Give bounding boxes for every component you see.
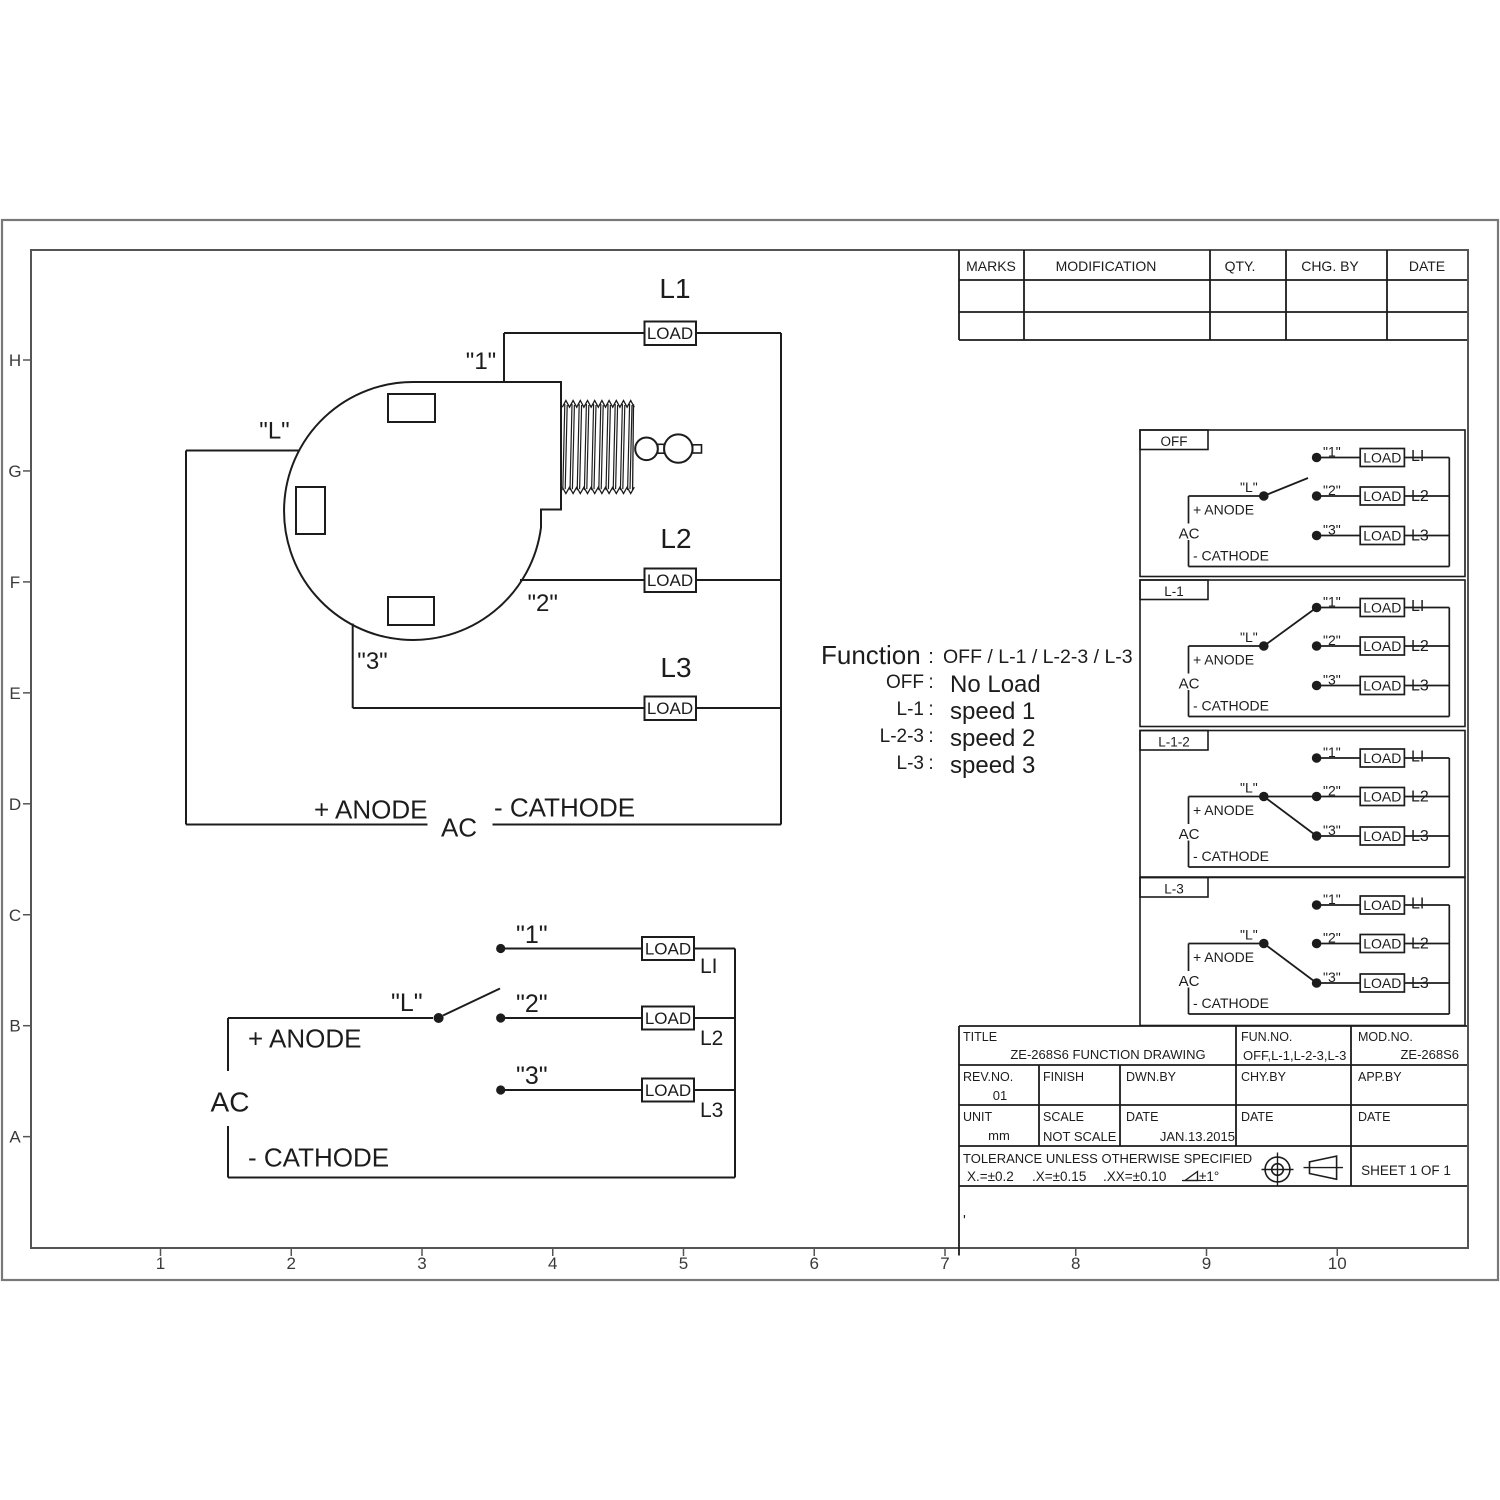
svg-text:Function: Function — [821, 640, 921, 670]
svg-text:DWN.BY: DWN.BY — [1126, 1070, 1177, 1084]
svg-text:JAN.13.2015: JAN.13.2015 — [1160, 1129, 1235, 1144]
svg-text:G: G — [8, 462, 21, 481]
svg-text:"3": "3" — [357, 648, 387, 675]
svg-text:L-1: L-1 — [1164, 584, 1184, 599]
svg-text:LOAD: LOAD — [1363, 678, 1401, 694]
svg-text:L-1: L-1 — [897, 699, 924, 720]
svg-text:L2: L2 — [1411, 638, 1429, 655]
svg-text:"1": "1" — [516, 921, 548, 949]
svg-text:"L": "L" — [1240, 780, 1258, 796]
svg-text:L2: L2 — [1411, 936, 1429, 953]
svg-text:01: 01 — [993, 1088, 1007, 1103]
svg-text:LOAD: LOAD — [647, 324, 693, 343]
svg-text:AC: AC — [1179, 526, 1200, 543]
svg-text:OFF / L-1 / L-2-3 / L-3: OFF / L-1 / L-2-3 / L-3 — [943, 646, 1133, 668]
svg-text:L3: L3 — [1411, 975, 1429, 992]
svg-text:LOAD: LOAD — [1363, 897, 1401, 913]
svg-text:NOT SCALE: NOT SCALE — [1043, 1129, 1117, 1144]
svg-text:LOAD: LOAD — [1363, 638, 1401, 654]
svg-text:LOAD: LOAD — [645, 1081, 691, 1100]
svg-text:OFF: OFF — [1161, 434, 1188, 449]
svg-text:L2: L2 — [1411, 789, 1429, 806]
svg-text:L2: L2 — [1411, 488, 1429, 505]
svg-text::: : — [928, 753, 933, 774]
svg-text:"L": "L" — [259, 418, 289, 445]
svg-text:+ ANODE: + ANODE — [1193, 802, 1254, 818]
svg-text:DATE: DATE — [1126, 1110, 1158, 1124]
svg-text:- CATHODE: - CATHODE — [1193, 698, 1269, 714]
svg-text:MARKS: MARKS — [966, 258, 1016, 274]
svg-text:OFF,L-1,L-2-3,L-3: OFF,L-1,L-2-3,L-3 — [1243, 1048, 1346, 1063]
svg-text:L-3: L-3 — [1164, 882, 1184, 897]
svg-text:1: 1 — [156, 1254, 165, 1273]
svg-text:"1": "1" — [1323, 444, 1341, 460]
svg-text:LI: LI — [700, 955, 718, 978]
svg-text:FINISH: FINISH — [1043, 1070, 1084, 1084]
svg-text:- CATHODE: - CATHODE — [1193, 848, 1269, 864]
svg-text:B: B — [9, 1017, 20, 1036]
svg-text:QTY.: QTY. — [1225, 258, 1256, 274]
svg-text:CHG. BY: CHG. BY — [1301, 258, 1359, 274]
svg-text:DATE: DATE — [1241, 1110, 1273, 1124]
svg-text:OFF: OFF — [886, 672, 924, 693]
svg-text::: : — [928, 699, 933, 720]
svg-text:AC: AC — [1179, 676, 1200, 693]
svg-text:"1": "1" — [1323, 744, 1341, 760]
svg-text::: : — [928, 726, 933, 747]
svg-text:L3: L3 — [1411, 828, 1429, 845]
svg-text:L3: L3 — [660, 652, 691, 683]
svg-text:2: 2 — [287, 1254, 296, 1273]
svg-text:- CATHODE: - CATHODE — [494, 793, 635, 823]
svg-text:L2: L2 — [700, 1027, 723, 1050]
svg-text:+ ANODE: + ANODE — [1193, 652, 1254, 668]
svg-text:LI: LI — [1411, 598, 1424, 615]
svg-text:LOAD: LOAD — [1363, 936, 1401, 952]
svg-text:APP.BY: APP.BY — [1358, 1070, 1402, 1084]
svg-text:LOAD: LOAD — [1363, 600, 1401, 616]
svg-text:D: D — [9, 795, 21, 814]
svg-text:LOAD: LOAD — [647, 699, 693, 718]
svg-text:TOLERANCE UNLESS OTHERWISE SPE: TOLERANCE UNLESS OTHERWISE SPECIFIED — [963, 1151, 1252, 1166]
svg-text:LOAD: LOAD — [1363, 750, 1401, 766]
svg-text:H: H — [9, 351, 21, 370]
svg-text:- CATHODE: - CATHODE — [1193, 548, 1269, 564]
svg-text:AC: AC — [1179, 826, 1200, 843]
svg-text:6: 6 — [810, 1254, 819, 1273]
svg-text:"2": "2" — [1323, 930, 1341, 946]
svg-text:LOAD: LOAD — [1363, 450, 1401, 466]
svg-text:9: 9 — [1202, 1254, 1211, 1273]
svg-text:+ ANODE: + ANODE — [248, 1024, 361, 1054]
svg-text:7: 7 — [940, 1254, 949, 1273]
svg-text:"2": "2" — [1323, 482, 1341, 498]
svg-text:L2: L2 — [660, 523, 691, 554]
svg-text:DATE: DATE — [1358, 1110, 1390, 1124]
svg-text:10: 10 — [1328, 1254, 1347, 1273]
svg-text:A: A — [9, 1128, 21, 1147]
svg-text:.X=±0.15: .X=±0.15 — [1032, 1169, 1086, 1184]
svg-text:"L": "L" — [1240, 629, 1258, 645]
svg-text:MOD.NO.: MOD.NO. — [1358, 1030, 1413, 1044]
svg-text:3: 3 — [417, 1254, 426, 1273]
svg-text:L1: L1 — [659, 273, 690, 304]
svg-text:"1": "1" — [1323, 594, 1341, 610]
svg-text:AC: AC — [1179, 973, 1200, 990]
svg-text:L-1-2: L-1-2 — [1158, 735, 1190, 750]
svg-text::: : — [928, 672, 933, 693]
svg-text:FUN.NO.: FUN.NO. — [1241, 1030, 1292, 1044]
svg-text:DATE: DATE — [1409, 258, 1445, 274]
svg-text:LOAD: LOAD — [645, 940, 691, 959]
svg-text:mm: mm — [988, 1128, 1010, 1143]
svg-text:L-3: L-3 — [897, 753, 924, 774]
svg-text:- CATHODE: - CATHODE — [1193, 995, 1269, 1011]
svg-text:AC: AC — [211, 1087, 250, 1118]
svg-text:C: C — [9, 906, 21, 925]
svg-text:4: 4 — [548, 1254, 557, 1273]
svg-text:L3: L3 — [1411, 678, 1429, 695]
svg-text:5: 5 — [679, 1254, 688, 1273]
svg-text:"3": "3" — [1323, 672, 1341, 688]
svg-text:+ ANODE: + ANODE — [314, 795, 427, 825]
svg-text:No Load: No Load — [950, 671, 1041, 698]
svg-text:REV.NO.: REV.NO. — [963, 1070, 1013, 1084]
svg-text:speed 3: speed 3 — [950, 752, 1035, 779]
svg-text::: : — [928, 646, 934, 668]
svg-text:"L": "L" — [391, 989, 423, 1017]
svg-text:MODIFICATION: MODIFICATION — [1056, 258, 1157, 274]
svg-text:"1": "1" — [466, 348, 496, 375]
svg-text:.XX=±0.10: .XX=±0.10 — [1103, 1169, 1166, 1184]
svg-text:AC: AC — [441, 813, 477, 843]
svg-text:LOAD: LOAD — [1363, 975, 1401, 991]
svg-text:LOAD: LOAD — [647, 571, 693, 590]
svg-text:±1°: ±1° — [1199, 1169, 1219, 1184]
svg-text:+ ANODE: + ANODE — [1193, 949, 1254, 965]
svg-text:TITLE: TITLE — [963, 1030, 997, 1044]
svg-text:ZE-268S6 FUNCTION DRAWING: ZE-268S6 FUNCTION DRAWING — [1010, 1047, 1205, 1062]
svg-text:"L": "L" — [1240, 927, 1258, 943]
svg-text:F: F — [10, 573, 20, 592]
svg-text:LOAD: LOAD — [1363, 528, 1401, 544]
svg-text:LOAD: LOAD — [1363, 789, 1401, 805]
svg-text:LI: LI — [1411, 749, 1424, 766]
svg-text:"3": "3" — [1323, 822, 1341, 838]
svg-text:"3": "3" — [516, 1062, 548, 1090]
svg-text:E: E — [9, 684, 20, 703]
svg-text:LOAD: LOAD — [645, 1009, 691, 1028]
svg-text:L3: L3 — [1411, 528, 1429, 545]
svg-text:X.=±0.2: X.=±0.2 — [967, 1169, 1014, 1184]
svg-text:': ' — [963, 1212, 966, 1229]
svg-text:CHY.BY: CHY.BY — [1241, 1070, 1287, 1084]
svg-text:+ ANODE: + ANODE — [1193, 502, 1254, 518]
svg-text:SHEET 1 OF 1: SHEET 1 OF 1 — [1361, 1163, 1451, 1178]
svg-text:L-2-3: L-2-3 — [880, 726, 924, 747]
svg-text:LI: LI — [1411, 448, 1424, 465]
svg-text:"2": "2" — [528, 590, 558, 617]
svg-text:- CATHODE: - CATHODE — [248, 1143, 389, 1173]
svg-text:"2": "2" — [1323, 783, 1341, 799]
svg-text:"3": "3" — [1323, 522, 1341, 538]
svg-text:"1": "1" — [1323, 891, 1341, 907]
svg-text:SCALE: SCALE — [1043, 1110, 1084, 1124]
svg-text:ZE-268S6: ZE-268S6 — [1400, 1047, 1459, 1062]
svg-text:LOAD: LOAD — [1363, 828, 1401, 844]
svg-text:"3": "3" — [1323, 969, 1341, 985]
svg-text:speed 2: speed 2 — [950, 725, 1035, 752]
svg-text:LOAD: LOAD — [1363, 488, 1401, 504]
svg-text:"2": "2" — [516, 990, 548, 1018]
svg-text:8: 8 — [1071, 1254, 1080, 1273]
svg-text:speed 1: speed 1 — [950, 698, 1035, 725]
svg-text:L3: L3 — [700, 1099, 723, 1122]
svg-text:LI: LI — [1411, 896, 1424, 913]
svg-text:"2": "2" — [1323, 632, 1341, 648]
svg-text:UNIT: UNIT — [963, 1110, 993, 1124]
svg-text:"L": "L" — [1240, 479, 1258, 495]
